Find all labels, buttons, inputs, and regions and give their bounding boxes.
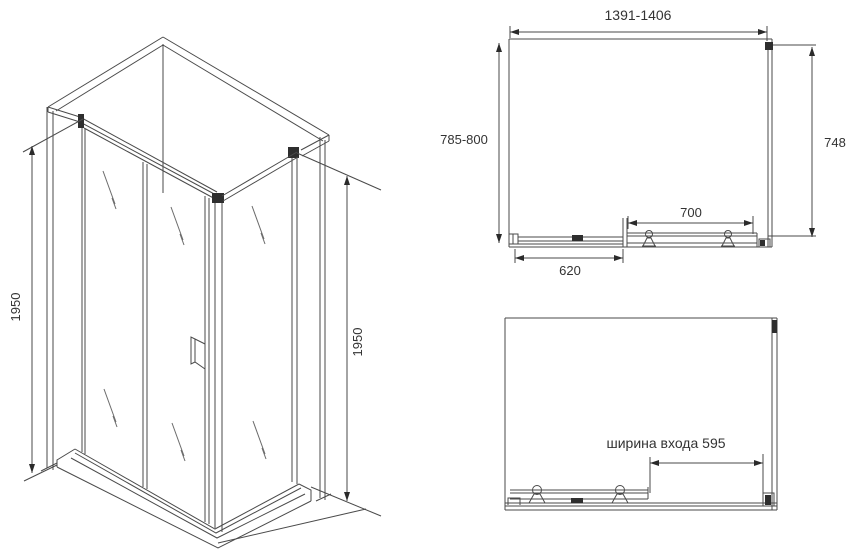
open-door-view: ширина входа 595 [505,318,777,510]
iso-view: 1950 1950 [8,37,381,548]
door-handle [191,337,205,369]
roller-icon [528,486,546,504]
iso-height-left-label: 1950 [8,293,23,322]
plan-dimension-side: 748 [768,45,846,237]
door-top-rail [78,114,219,201]
corner-post-cap [212,193,224,203]
open-outline [505,318,777,510]
entrance-width-label: ширина входа 595 [606,435,725,451]
guide-bracket [572,235,583,241]
plan-depth-label: 785-800 [440,132,488,147]
wall-bracket-top [772,320,777,333]
plan-dimension-depth: 785-800 [440,43,502,243]
technical-drawing-canvas: 1950 1950 [0,0,856,551]
plan-door-track-label: 700 [680,205,702,220]
drawing-svg: 1950 1950 [0,0,856,551]
shower-tray [24,449,366,548]
entrance-width-dimension: ширина входа 595 [606,435,763,496]
plan-view: 1391-1406 785-800 748 700 [440,7,846,278]
plan-width-label: 1391-1406 [605,7,672,23]
wall-bracket-top [765,42,773,50]
iso-dimension-left: 1950 [8,119,83,473]
open-sliding-door [508,486,648,506]
iso-dimension-right: 1950 [297,153,381,516]
plan-dimension-width: 1391-1406 [510,7,767,41]
iso-height-right-label: 1950 [350,328,365,357]
plan-track-assembly [509,218,770,247]
plan-dimension-fixed-panel: 620 [515,249,623,278]
top-frame [48,37,329,193]
guide-bracket [571,498,583,503]
glass-reflections [103,171,266,461]
plan-fixed-panel-label: 620 [559,263,581,278]
roller-icon [611,486,629,504]
plan-outline [509,39,773,247]
plan-side-depth-label: 748 [824,135,846,150]
plan-dimension-door-track: 700 [628,205,753,234]
